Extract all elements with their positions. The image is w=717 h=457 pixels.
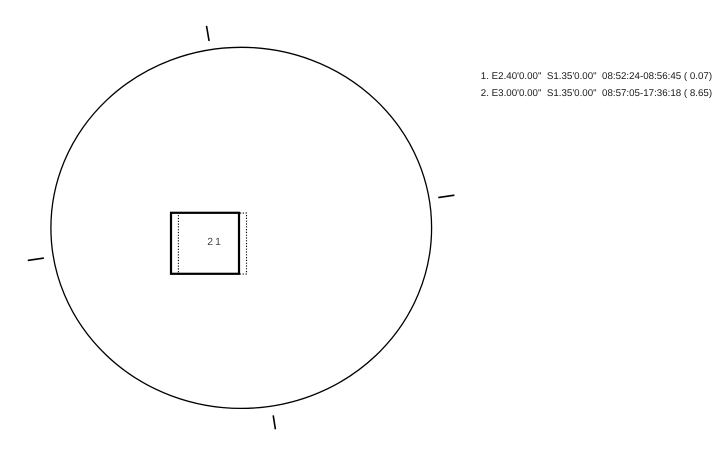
svg-text:21: 21: [207, 237, 223, 248]
svg-text:1. E2.40'0.00" S1.35'0.00" 0: 1. E2.40'0.00" S1.35'0.00" 08:52:24-08:5…: [481, 71, 712, 82]
svg-text:2. E3.00'0.00" S1.35'0.00" 0: 2. E3.00'0.00" S1.35'0.00" 08:57:05-17:3…: [481, 88, 712, 99]
